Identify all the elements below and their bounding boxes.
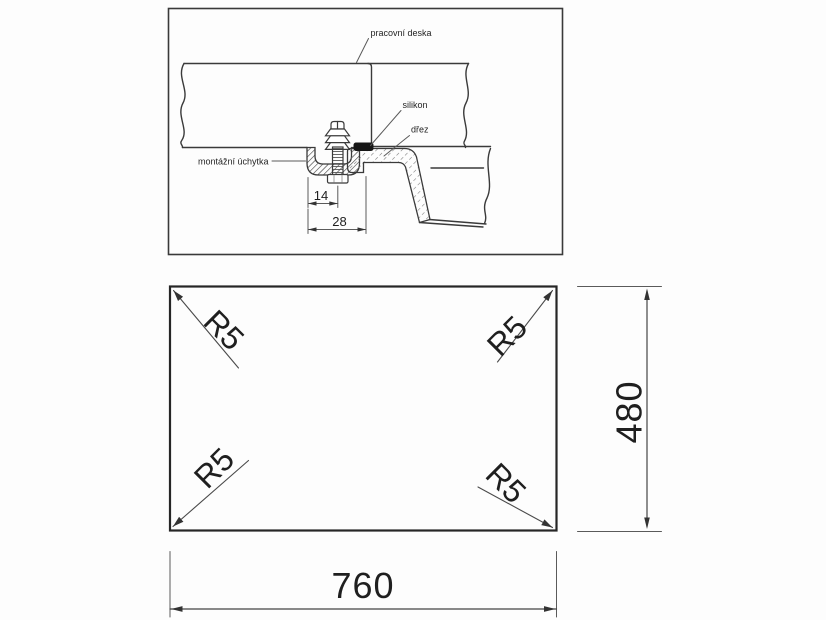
radius-label-top-left: R5 xyxy=(197,303,251,357)
screw-shaft xyxy=(333,147,344,177)
sink-bowl-lines xyxy=(420,149,491,228)
label-worktop: pracovní deska xyxy=(371,28,432,38)
sink-flange xyxy=(348,149,431,223)
sink-installation-drawing: pracovní deska silikon dřez montážní úch… xyxy=(0,0,826,620)
height-dimension-value: 480 xyxy=(609,380,650,443)
dimension-28-value: 28 xyxy=(332,214,346,229)
width-dimension-value: 760 xyxy=(331,565,394,606)
label-sink: dřez xyxy=(411,125,429,135)
sink-break-line xyxy=(485,149,491,224)
detail-section: pracovní deska silikon dřez montážní úch… xyxy=(169,9,563,255)
leader-worktop xyxy=(357,39,369,63)
screw-ridge-1 xyxy=(326,129,350,136)
worktop-break-line-left xyxy=(181,64,185,148)
height-dimension: 480 xyxy=(578,287,662,532)
worktop-break-line-right xyxy=(464,64,469,148)
screw-ridge-2 xyxy=(326,136,350,143)
dimension-14-value: 14 xyxy=(314,188,328,203)
label-silicone: silikon xyxy=(403,100,428,110)
silicone-seal xyxy=(354,143,374,152)
screw-nut xyxy=(328,175,349,184)
leader-silicone xyxy=(371,111,402,146)
radius-label-bottom-left: R5 xyxy=(187,441,241,495)
technical-drawing-page: pracovní deska silikon dřez montážní úch… xyxy=(0,0,826,620)
radius-label-top-right: R5 xyxy=(480,309,534,363)
plan-view: R5 R5 R5 R5 480 xyxy=(170,287,662,618)
label-clip: montážní úchytka xyxy=(198,157,269,167)
radius-label-bottom-right: R5 xyxy=(479,456,533,510)
width-dimension: 760 xyxy=(170,552,557,618)
